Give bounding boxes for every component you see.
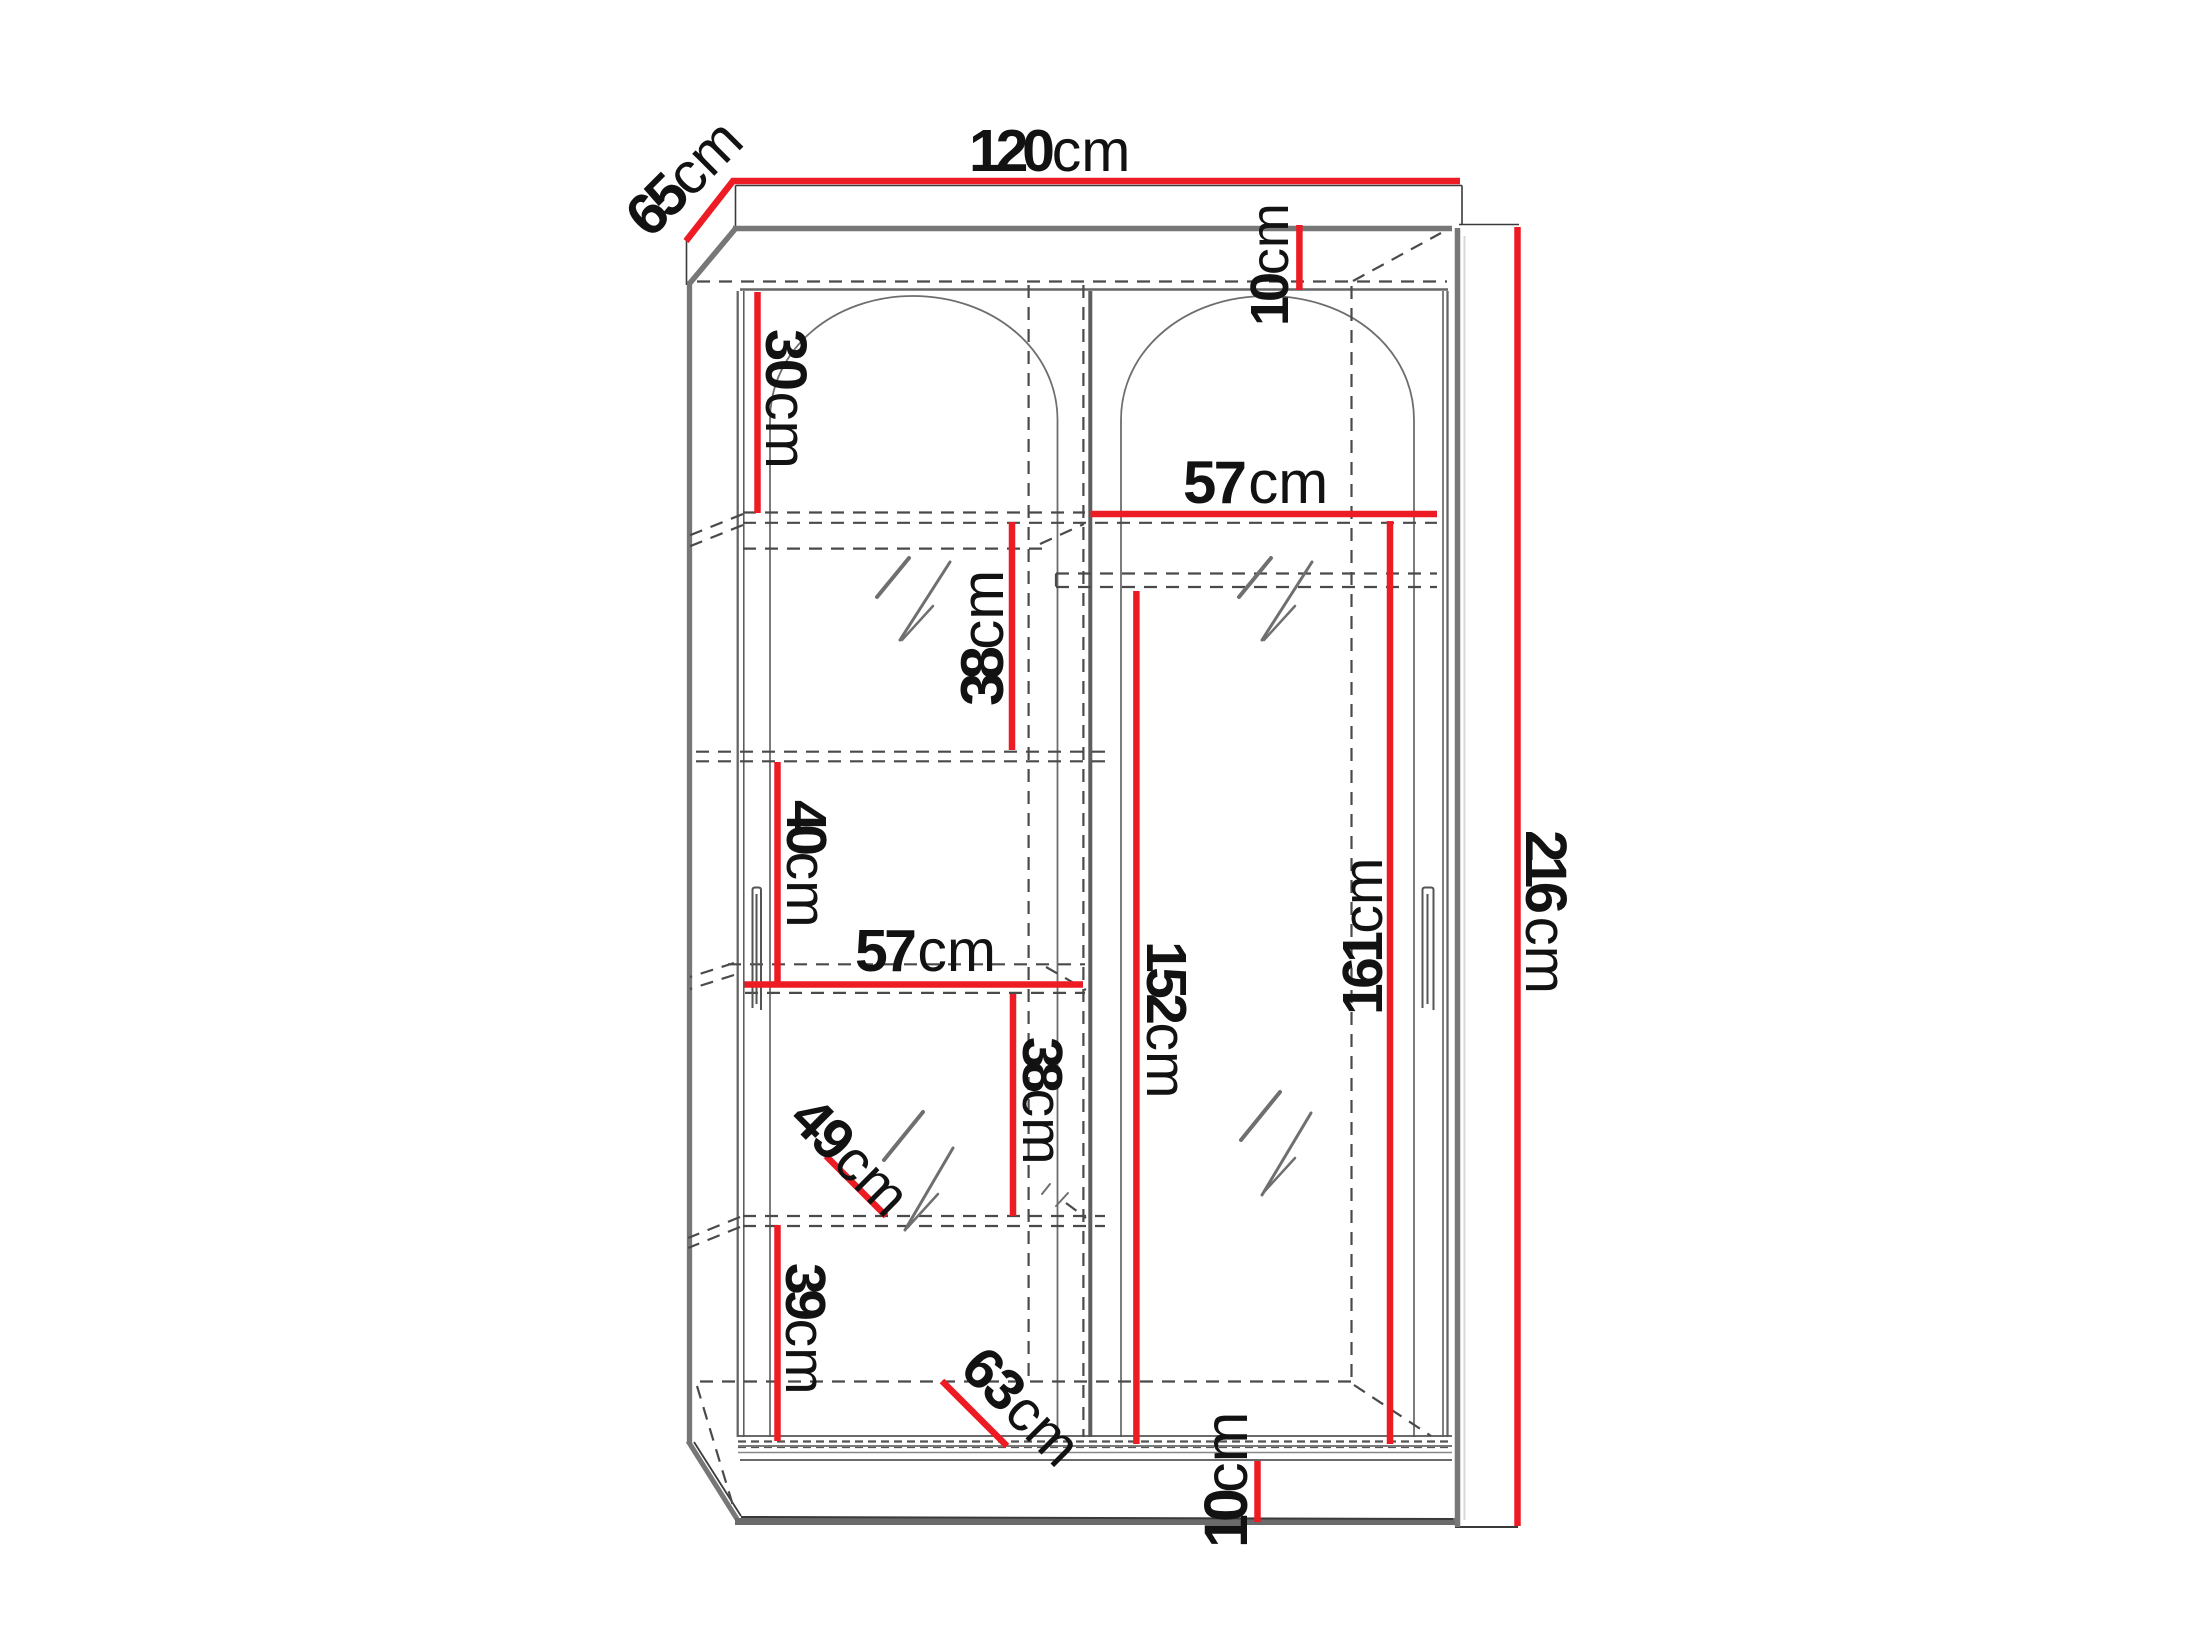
svg-text:10cm: 10cm [1192, 1412, 1260, 1548]
svg-text:57cm: 57cm [855, 918, 996, 984]
svg-text:40cm: 40cm [774, 800, 838, 928]
svg-text:57cm: 57cm [1183, 449, 1328, 516]
svg-text:38cm: 38cm [949, 570, 1016, 706]
svg-text:30cm: 30cm [753, 329, 818, 469]
svg-text:120cm: 120cm [969, 118, 1130, 184]
svg-text:38cm: 38cm [1010, 1037, 1074, 1165]
svg-text:39cm: 39cm [773, 1263, 837, 1395]
svg-text:161cm: 161cm [1331, 858, 1395, 1015]
svg-text:10cm: 10cm [1240, 203, 1300, 326]
svg-text:216cm: 216cm [1513, 830, 1578, 994]
svg-text:152cm: 152cm [1134, 941, 1198, 1098]
